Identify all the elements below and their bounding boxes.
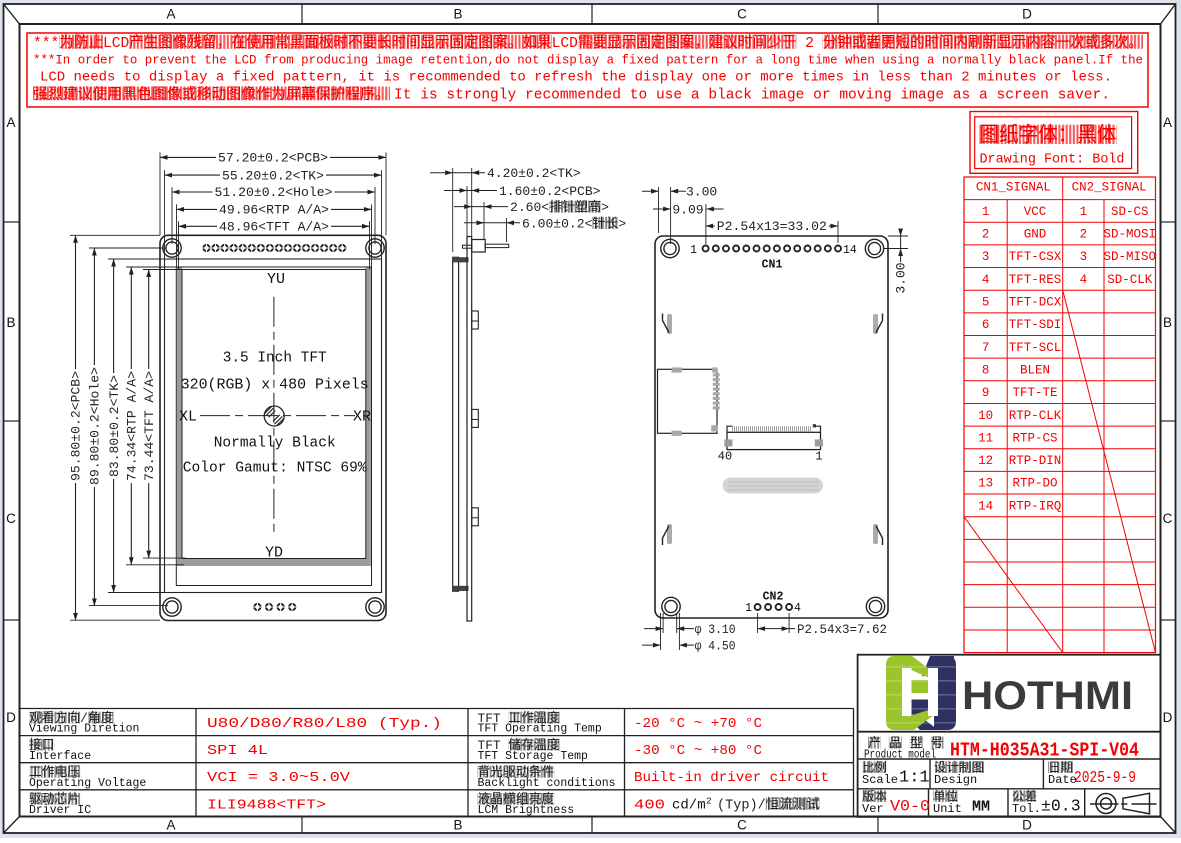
svg-text:U80/D80/R80/L80 (Typ.): U80/D80/R80/L80 (Typ.) (207, 716, 442, 732)
svg-text:VCC: VCC (1024, 205, 1047, 219)
svg-text:CN2_SIGNAL: CN2_SIGNAL (1072, 180, 1147, 194)
svg-text:B: B (1163, 315, 1172, 330)
svg-text:RTP-CS: RTP-CS (1012, 431, 1057, 445)
svg-text:3: 3 (982, 250, 990, 264)
svg-text:2025-9-9: 2025-9-9 (1074, 768, 1136, 787)
svg-text:YU: YU (267, 271, 285, 288)
svg-text:XR: XR (353, 409, 371, 426)
svg-text:9.09: 9.09 (672, 203, 703, 218)
svg-text:Backlight conditions: Backlight conditions (478, 777, 616, 790)
svg-text:4: 4 (1080, 273, 1088, 287)
svg-text:1: 1 (745, 602, 752, 615)
svg-text:5: 5 (982, 296, 990, 310)
svg-text:±0.3: ±0.3 (1041, 797, 1081, 816)
svg-text:1: 1 (982, 205, 990, 219)
svg-text:SPI 4L: SPI 4L (207, 743, 268, 759)
svg-text:1: 1 (690, 244, 697, 257)
svg-text:C: C (737, 818, 747, 833)
svg-text:2: 2 (706, 795, 712, 806)
svg-text:A: A (1163, 115, 1172, 130)
svg-text:1.60±0.2<PCB>: 1.60±0.2<PCB> (499, 184, 601, 199)
svg-text:51.20±0.2<Hole>: 51.20±0.2<Hole> (215, 185, 333, 200)
svg-text:89.80±0.2<Hole>: 89.80±0.2<Hole> (88, 367, 103, 485)
svg-text:D: D (1163, 710, 1173, 725)
svg-text:3.00: 3.00 (894, 262, 909, 293)
svg-text:MM: MM (972, 799, 990, 816)
svg-text:Drawing Font: Bold: Drawing Font: Bold (980, 152, 1125, 168)
svg-text:TFT-TE: TFT-TE (1012, 386, 1057, 400)
svg-text:Unit: Unit (933, 802, 962, 816)
svg-text:ILI9488<TFT>: ILI9488<TFT> (207, 797, 326, 813)
svg-text:7: 7 (982, 341, 990, 355)
svg-text:RTP-CLK: RTP-CLK (1009, 409, 1062, 423)
svg-text:Ver: Ver (862, 802, 884, 816)
svg-text:SD-CS: SD-CS (1111, 205, 1149, 219)
svg-text:320(RGB) x 480 Pixels: 320(RGB) x 480 Pixels (181, 377, 369, 394)
svg-text:P2.54x3=7.62: P2.54x3=7.62 (797, 623, 887, 637)
svg-text:6.00±0.2<针长>: 6.00±0.2<针长> (522, 216, 626, 231)
svg-text:D: D (6, 710, 16, 725)
svg-text:图纸字体：黑体: 图纸字体：黑体 (980, 124, 1117, 149)
svg-text:3.5 Inch TFT: 3.5 Inch TFT (223, 350, 327, 367)
svg-text:A: A (6, 115, 15, 130)
svg-text:Driver IC: Driver IC (29, 804, 91, 817)
svg-text:TFT-SDI: TFT-SDI (1009, 318, 1062, 332)
svg-text:Tol.: Tol. (1012, 802, 1041, 816)
svg-text:TFT Operating Temp: TFT Operating Temp (478, 723, 602, 736)
svg-text:C: C (6, 511, 16, 526)
svg-text:It is strongly recommended to: It is strongly recommended to use a blac… (394, 87, 1110, 104)
svg-text:RTP-IRQ: RTP-IRQ (1009, 499, 1062, 513)
svg-text:B: B (6, 315, 15, 330)
svg-text:TFT-SCL: TFT-SCL (1009, 341, 1062, 355)
svg-text:74.34<RTP A/A>: 74.34<RTP A/A> (125, 371, 140, 481)
svg-text:Color Gamut: NTSC 69%: Color Gamut: NTSC 69% (183, 459, 368, 476)
svg-text:Design: Design (934, 773, 977, 787)
svg-text:TFT-RES: TFT-RES (1009, 273, 1062, 287)
svg-text:9: 9 (982, 386, 990, 400)
svg-text:TFT Storage Temp: TFT Storage Temp (478, 750, 589, 763)
svg-text:RTP-DO: RTP-DO (1012, 477, 1057, 491)
svg-text:Scale: Scale (862, 773, 898, 787)
svg-text:(Typ)/恒流测试: (Typ)/恒流测试 (717, 796, 820, 813)
svg-text:73.44<TFT A/A>: 73.44<TFT A/A> (142, 371, 157, 481)
svg-text:D: D (1022, 818, 1032, 833)
svg-text:RTP-DIN: RTP-DIN (1009, 454, 1062, 468)
svg-text:φ 4.50: φ 4.50 (695, 639, 736, 654)
svg-text:83.80±0.2<TK>: 83.80±0.2<TK> (107, 375, 122, 477)
svg-text:Product model: Product model (864, 749, 936, 762)
svg-text:HOTHMI: HOTHMI (962, 674, 1133, 718)
svg-text:cd/m: cd/m (672, 797, 706, 813)
svg-text:φ 3.10: φ 3.10 (695, 622, 736, 637)
svg-text:YD: YD (265, 545, 283, 562)
svg-text:-20 °C ~ +70 °C: -20 °C ~ +70 °C (634, 716, 762, 732)
svg-text:LCD needs to display a fixed p: LCD needs to display a fixed pattern, it… (40, 70, 1112, 86)
svg-text:3.00: 3.00 (686, 185, 717, 200)
svg-text:P2.54x13=33.02: P2.54x13=33.02 (717, 219, 827, 234)
svg-text:Date: Date (1048, 773, 1077, 787)
svg-text:1:1: 1:1 (899, 769, 930, 788)
svg-text:强烈建议使用黑色图像或移动图像作为屏幕保护程序。: 强烈建议使用黑色图像或移动图像作为屏幕保护程序。 (33, 86, 390, 104)
svg-text:4: 4 (982, 273, 990, 287)
svg-text:SD-CLK: SD-CLK (1107, 273, 1153, 287)
svg-text:4.20±0.2<TK>: 4.20±0.2<TK> (487, 166, 581, 181)
svg-text:TFT-CSX: TFT-CSX (1009, 250, 1062, 264)
svg-text:Built-in driver circuit: Built-in driver circuit (634, 770, 829, 786)
svg-text:CN1_SIGNAL: CN1_SIGNAL (976, 180, 1051, 194)
svg-text:10: 10 (978, 409, 993, 423)
svg-text:D: D (1022, 7, 1032, 22)
svg-text:1: 1 (1080, 205, 1088, 219)
svg-text:C: C (737, 7, 747, 22)
svg-text:C: C (1163, 511, 1173, 526)
svg-text:***In order to prevent the LCD: ***In order to prevent the LCD from prod… (33, 54, 1143, 68)
svg-text:Normally Black: Normally Black (214, 435, 336, 452)
svg-text:13: 13 (978, 477, 993, 491)
svg-text:Interface: Interface (29, 750, 91, 763)
svg-text:2.60<排针塑高>: 2.60<排针塑高> (510, 199, 609, 215)
svg-text:HTM-H035A31-SPI-V04: HTM-H035A31-SPI-V04 (950, 740, 1139, 762)
svg-text:VCI = 3.0~5.0V: VCI = 3.0~5.0V (207, 770, 351, 786)
svg-text:A: A (166, 7, 175, 22)
svg-text:55.20±0.2<TK>: 55.20±0.2<TK> (222, 168, 324, 183)
svg-text:11: 11 (978, 431, 993, 445)
svg-text:CN1: CN1 (762, 258, 783, 271)
svg-text:14: 14 (843, 244, 857, 257)
svg-text:8: 8 (982, 363, 990, 377)
svg-text:57.20±0.2<PCB>: 57.20±0.2<PCB> (218, 151, 328, 166)
svg-text:XL: XL (179, 409, 197, 426)
svg-text:LCM Brightness: LCM Brightness (478, 804, 575, 817)
svg-text:1: 1 (815, 450, 822, 464)
svg-text:V0-0: V0-0 (890, 798, 930, 816)
svg-text:SD-MISO: SD-MISO (1103, 250, 1156, 264)
svg-text:12: 12 (978, 454, 993, 468)
svg-text:95.80±0.2<PCB>: 95.80±0.2<PCB> (69, 371, 84, 481)
svg-text:14: 14 (978, 499, 993, 513)
svg-text:GND: GND (1024, 228, 1047, 242)
svg-text:***为防止LCD产生图像残留，在使用常黑面板时不要长时间显: ***为防止LCD产生图像残留，在使用常黑面板时不要长时间显示固定图案。如果LC… (33, 33, 1143, 52)
svg-text:4: 4 (794, 602, 801, 615)
svg-text:B: B (453, 7, 462, 22)
svg-text:2: 2 (1080, 228, 1088, 242)
svg-text:Operating Voltage: Operating Voltage (29, 777, 146, 790)
svg-text:B: B (453, 818, 462, 833)
svg-text:CN2: CN2 (763, 591, 784, 604)
svg-text:-30 °C ~ +80 °C: -30 °C ~ +80 °C (634, 743, 762, 759)
svg-text:3: 3 (1080, 250, 1088, 264)
svg-text:SD-MOSI: SD-MOSI (1103, 228, 1156, 242)
svg-text:49.96<RTP A/A>: 49.96<RTP A/A> (219, 203, 329, 218)
svg-text:BLEN: BLEN (1020, 363, 1050, 377)
svg-text:40: 40 (718, 450, 732, 464)
svg-text:400: 400 (634, 797, 665, 813)
svg-text:TFT-DCX: TFT-DCX (1009, 296, 1062, 310)
svg-text:2: 2 (982, 228, 990, 242)
svg-text:6: 6 (982, 318, 990, 332)
svg-text:A: A (166, 818, 175, 833)
svg-text:48.96<TFT A/A>: 48.96<TFT A/A> (219, 220, 329, 235)
svg-text:Viewing Diretion: Viewing Diretion (29, 723, 139, 736)
